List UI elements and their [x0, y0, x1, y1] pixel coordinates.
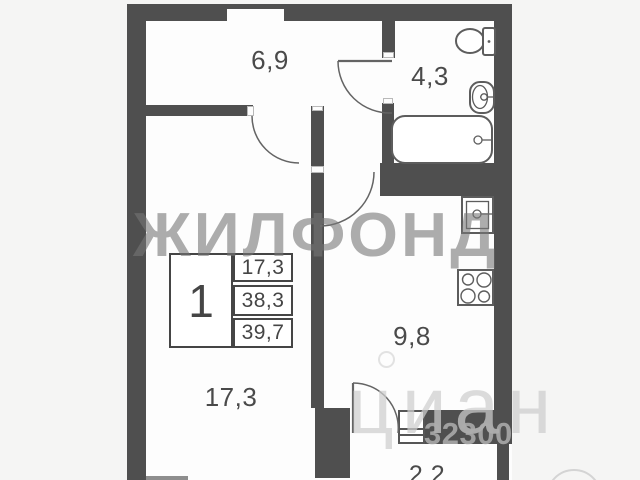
wash-basin-icon [470, 82, 494, 113]
kitchen-sink-icon [462, 197, 493, 233]
floor-plan-image: 6,9 4,3 17,3 9,8 2,2 1 17,3 38,3 39,7 ЖИ… [0, 0, 640, 480]
stove-icon [458, 270, 493, 305]
kitchen-area-label: 9,8 [380, 321, 444, 352]
balcony-area-label: 2,2 [402, 461, 452, 480]
bathroom-door [338, 61, 392, 113]
balcony-door [353, 383, 398, 433]
apartment-info-box: 1 17,3 38,3 39,7 [169, 253, 293, 348]
living-room-door [252, 116, 299, 163]
room-count-cell: 1 [169, 253, 233, 348]
hallway-area-label: 6,9 [238, 45, 302, 76]
total-area-cell: 38,3 [233, 285, 293, 316]
total-area-with-balcony-cell: 39,7 [233, 318, 293, 348]
bathtub-icon [392, 116, 492, 163]
living-room-area-label: 17,3 [195, 382, 267, 413]
kitchen-door [320, 172, 374, 226]
living-area-cell: 17,3 [233, 253, 293, 282]
toilet-icon [456, 28, 495, 55]
bathroom-area-label: 4,3 [398, 61, 462, 92]
